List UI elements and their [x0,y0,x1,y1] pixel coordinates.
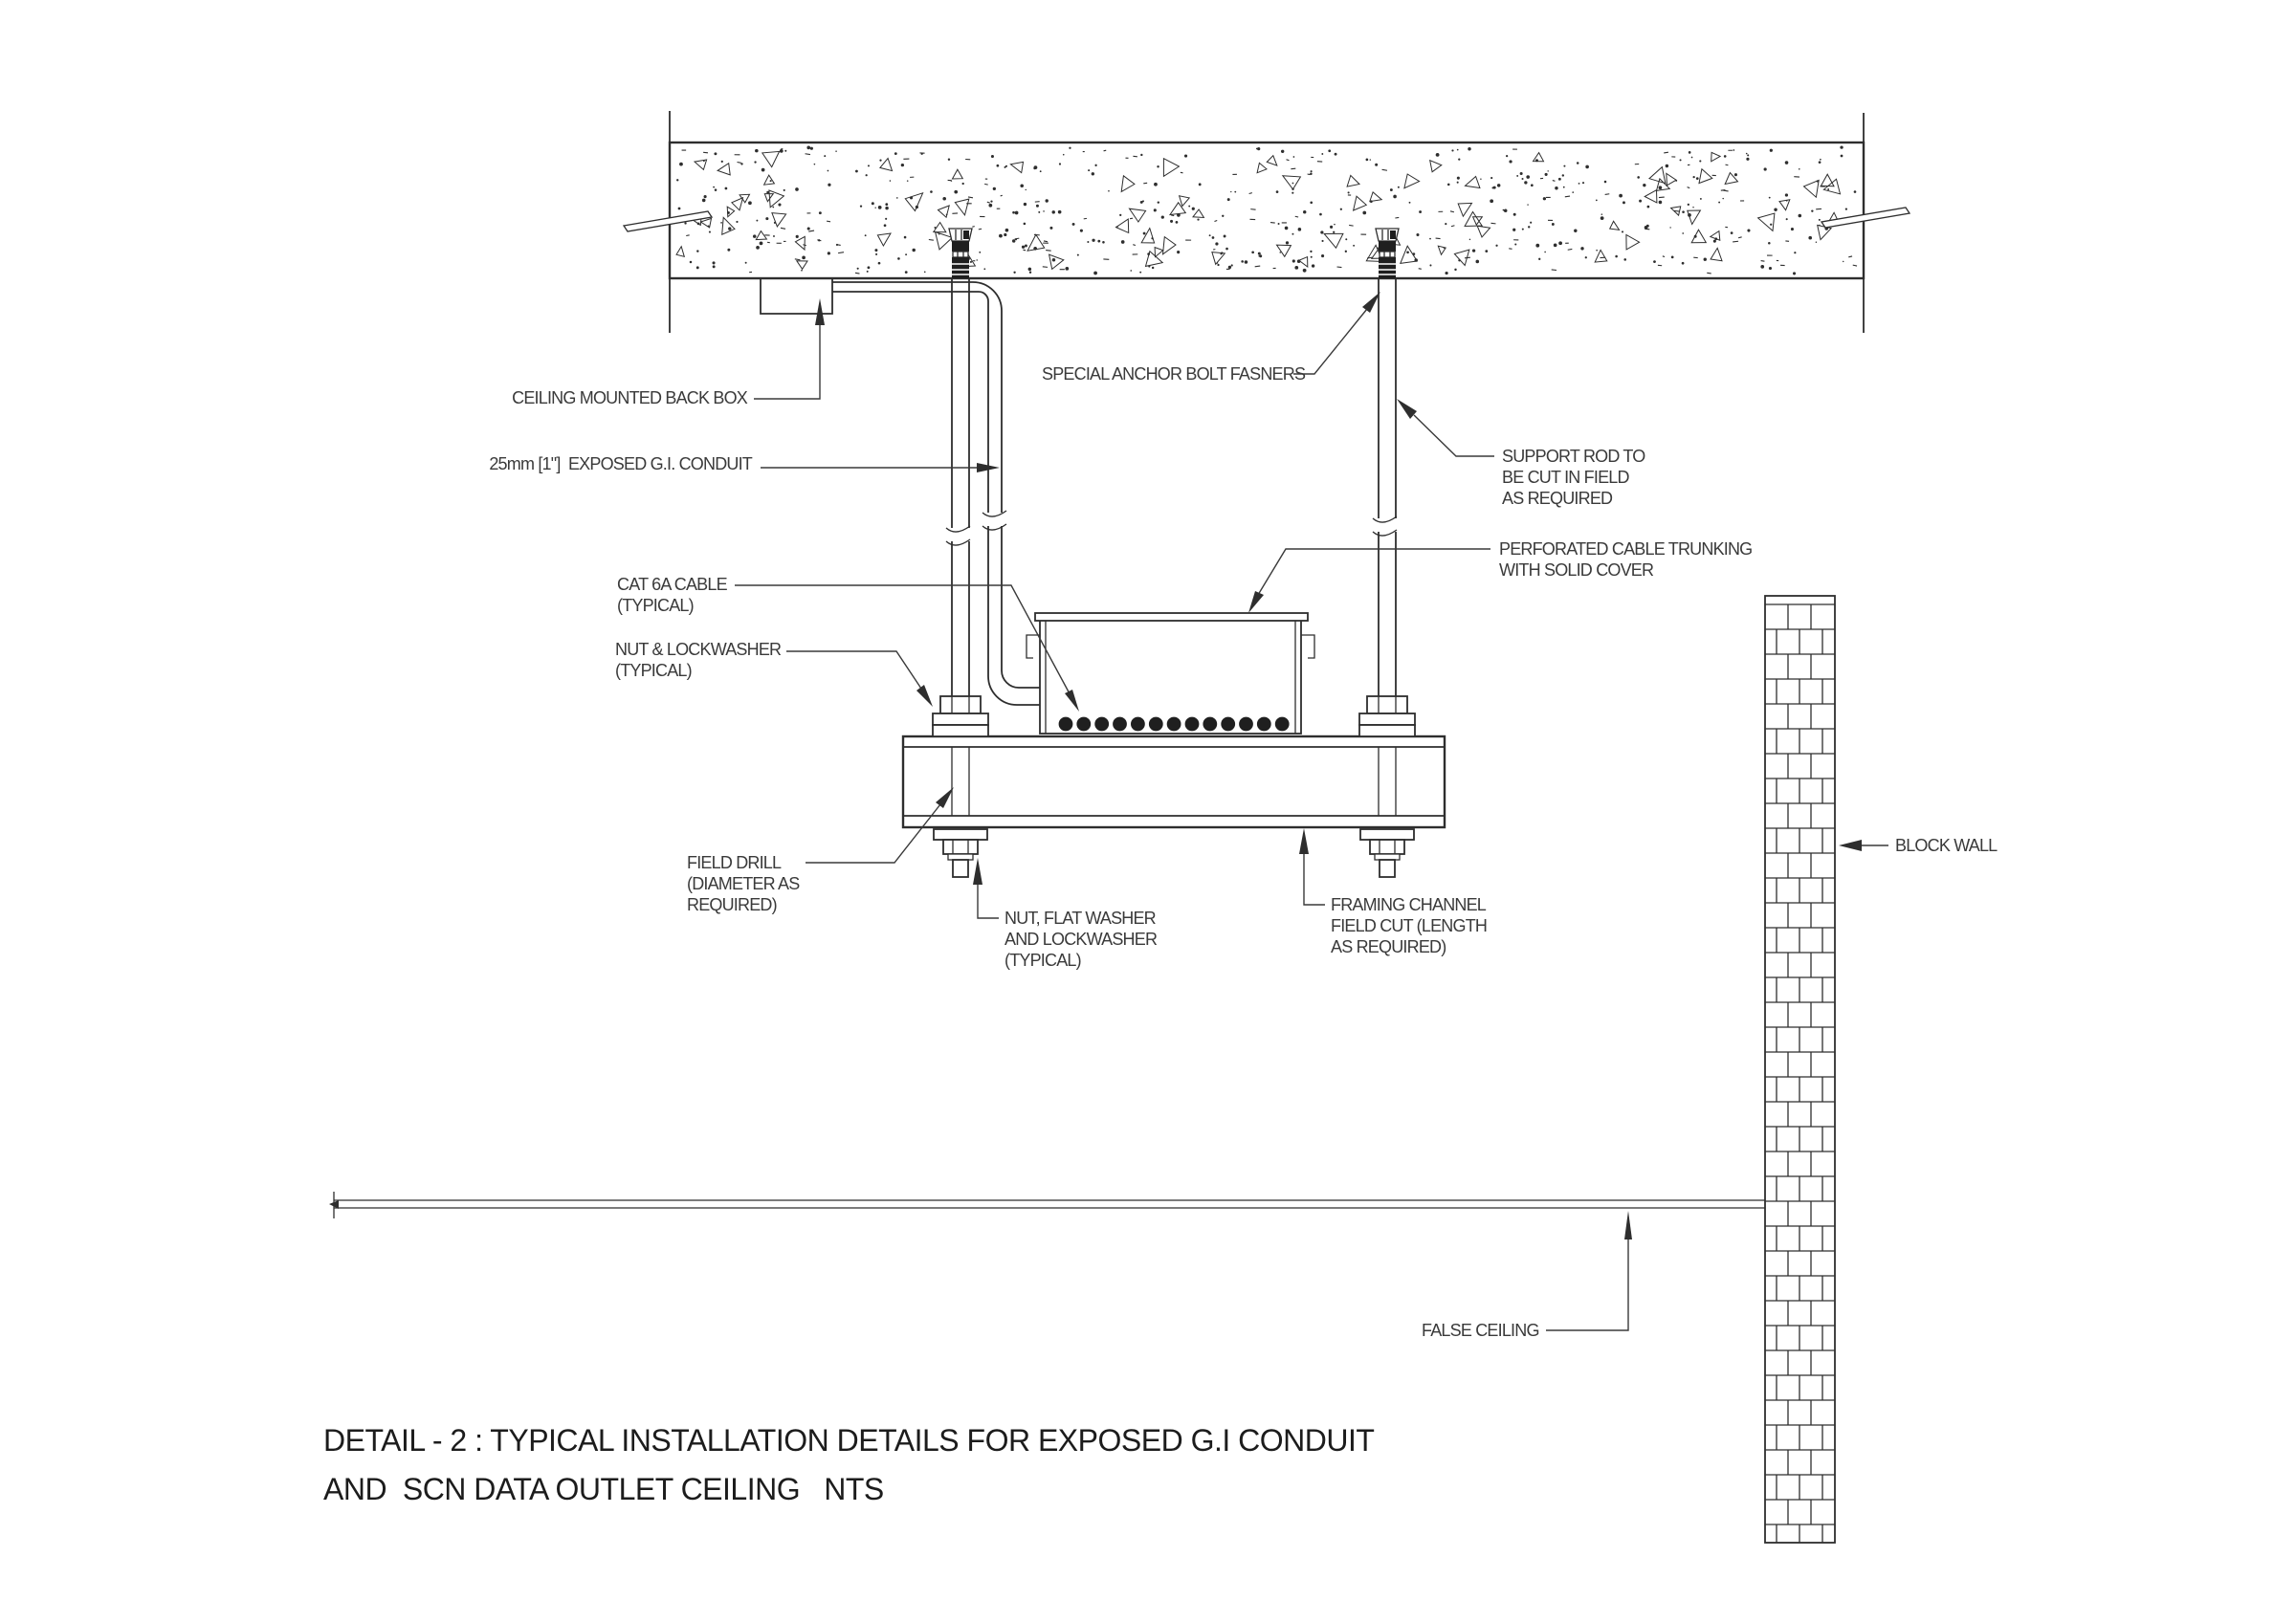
conduit-break-squiggle [982,511,1006,516]
arrowhead-icon [1397,399,1417,419]
rod-stub [1380,860,1395,877]
drawing-title: DETAIL - 2 : TYPICAL INSTALLATION DETAIL… [323,1423,1374,1506]
annotation-conduit: 25mm [1"] EXPOSED G.I. CONDUIT [489,454,1000,473]
leader-line [735,585,1071,697]
anchor-collar [952,241,969,252]
title-line2: AND SCN DATA OUTLET CEILING NTS [323,1472,884,1506]
leader-line [754,323,820,399]
annotation-back-box: CEILING MOUNTED BACK BOX [512,298,825,407]
nut-flat-label-line1: NUT, FLAT WASHER [1004,909,1157,928]
conduit-inner [832,292,988,513]
cat6a-label-line2: (TYPICAL) [617,596,694,615]
annotation-special-anchor: SPECIAL ANCHOR BOLT FASNERS [1042,292,1380,384]
nut-washer-upper-1 [933,696,988,736]
break-mark-right [1821,208,1910,228]
rod-break-squiggle [946,526,970,532]
anchor-gap [953,252,968,257]
arrowhead-icon [1299,828,1309,854]
lock-washer [1375,854,1400,860]
conduit-label: 25mm [1"] EXPOSED G.I. CONDUIT [489,454,752,473]
framing-label-line1: FRAMING CHANNEL [1331,895,1487,914]
block-wall-bricks [1765,604,1835,1543]
false-ceiling-label: FALSE CEILING [1422,1321,1539,1340]
arrowhead-icon [916,685,933,707]
field-drill-label-line1: FIELD DRILL [687,853,782,872]
framing-channel [903,736,1445,827]
lock-washer [1359,713,1415,725]
conduit-break-squiggle [982,524,1006,530]
trunking-cover-clip-right [1301,635,1314,658]
annotation-nut-lockwasher: NUT & LOCKWASHER (TYPICAL) [615,640,933,707]
nut-lockwasher-label-line2: (TYPICAL) [615,661,692,680]
rod-break-squiggle [946,539,970,545]
nut-washer-upper-2 [1359,696,1415,736]
conduit-run [832,282,1040,705]
block-wall [1765,596,1835,1543]
trunking-label-line1: PERFORATED CABLE TRUNKING [1499,539,1752,559]
drawing-sheet: CEILING MOUNTED BACK BOX 25mm [1"] EXPOS… [0,0,2296,1623]
leader-line [1414,415,1494,456]
rod-stub [953,860,968,877]
false-ceiling [329,1192,1765,1218]
field-drill-label-line3: REQUIRED) [687,895,777,914]
flat-washer [933,725,988,736]
conduit-lower-inner [1002,526,1040,688]
break-mark-left [624,211,712,231]
annotation-nut-flat-washer: NUT, FLAT WASHER AND LOCKWASHER (TYPICAL… [973,858,1158,970]
flat-washer [1359,725,1415,736]
rod-break-squiggle [1373,516,1397,522]
arrowhead-icon [815,298,825,325]
leader-line [1258,549,1490,595]
nut-flat-label-line2: AND LOCKWASHER [1004,930,1158,949]
leader-line [978,883,999,918]
slab-outline [670,143,1864,278]
anchor-collar [1379,241,1396,252]
trunking-body [1040,619,1301,734]
lock-washer [933,713,988,725]
arrowhead-icon [936,787,954,808]
hex-nut [940,696,981,713]
hex-nut [1367,696,1407,713]
annotation-false-ceiling: FALSE CEILING [1422,1211,1632,1340]
annotation-field-drill: FIELD DRILL (DIAMETER AS REQUIRED) [687,787,954,914]
flat-washer [934,829,987,840]
nut-lockwasher-label-line1: NUT & LOCKWASHER [615,640,782,659]
anchor-bolt-1 [949,229,972,278]
nut-washer-lower-2 [1360,829,1414,877]
support-rod-label-line2: BE CUT IN FIELD [1502,468,1629,487]
anchor-bolt-2 [1376,229,1399,278]
arrowhead-icon [1839,840,1862,851]
cat6a-label-line1: CAT 6A CABLE [617,575,728,594]
anchor-gap [1380,252,1395,257]
leader-line [1304,852,1325,905]
leader-line [1546,1238,1628,1330]
nut-flat-label-line3: (TYPICAL) [1004,951,1081,970]
support-rod-label-line1: SUPPORT ROD TO [1502,447,1645,466]
title-line1: DETAIL - 2 : TYPICAL INSTALLATION DETAIL… [323,1423,1374,1458]
concrete-slab [624,111,1910,333]
special-anchor-label: SPECIAL ANCHOR BOLT FASNERS [1042,364,1306,384]
flat-washer [1360,829,1414,840]
framing-label-line3: AS REQUIRED) [1331,937,1446,956]
annotation-block-wall: BLOCK WALL [1839,836,1998,855]
hex-nut [1370,840,1404,854]
annotation-support-rod: SUPPORT ROD TO BE CUT IN FIELD AS REQUIR… [1397,399,1645,508]
anchor-head-mark [963,230,969,239]
back-box-label: CEILING MOUNTED BACK BOX [512,388,748,407]
hex-nut [943,840,978,854]
support-rod-label-line3: AS REQUIRED [1502,489,1613,508]
anchor-head-mark [1390,230,1396,239]
installation-detail-drawing: CEILING MOUNTED BACK BOX 25mm [1"] EXPOS… [0,0,2296,1623]
leader-line [786,651,921,689]
conduit-outer [832,282,1002,513]
field-drill-label-line2: (DIAMETER AS [687,874,800,893]
conduit-lower-outer [988,526,1040,705]
lock-washer [948,854,973,860]
block-wall-label: BLOCK WALL [1895,836,1998,855]
trunking-label-line2: WITH SOLID COVER [1499,560,1654,580]
annotation-trunking: PERFORATED CABLE TRUNKING WITH SOLID COV… [1248,539,1752,613]
trunking-solid-cover [1035,613,1308,621]
arrowhead-icon [973,858,982,885]
arrowhead-icon [1624,1211,1632,1239]
concrete-stipple-texture [676,145,1857,274]
framing-label-line2: FIELD CUT (LENGTH [1331,916,1487,935]
leader-line [806,804,940,863]
arrowhead-icon [1248,591,1264,613]
trunking-cover-clip-left [1027,635,1040,658]
rod-break-squiggle [1373,530,1397,536]
cable-trunking [1027,613,1314,734]
channel-outline [903,736,1445,827]
